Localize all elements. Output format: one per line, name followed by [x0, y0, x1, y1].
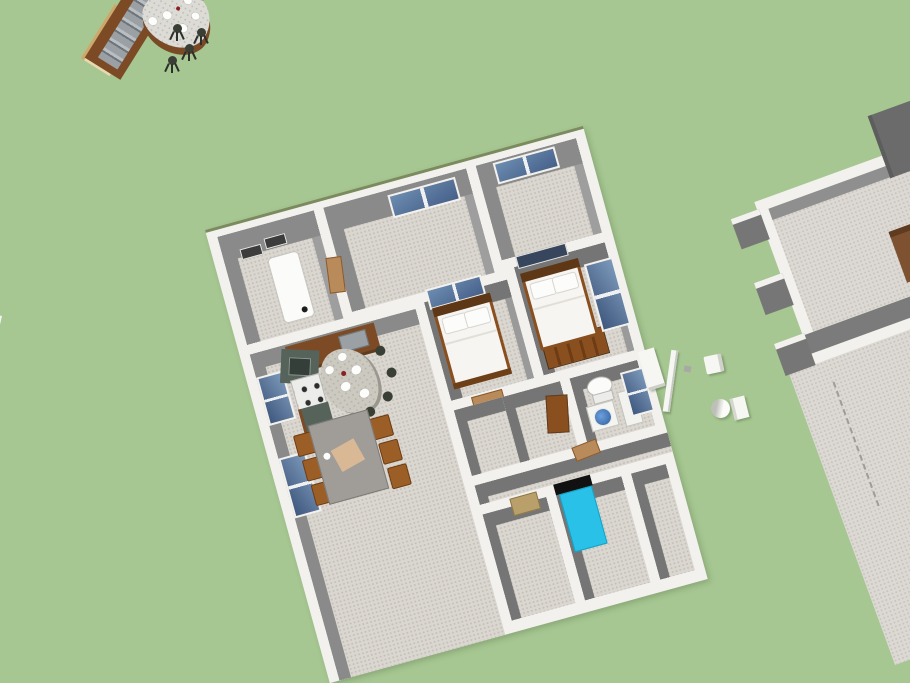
red-item	[175, 6, 180, 11]
small-gray-mark	[684, 366, 692, 373]
corner-sink-basin	[288, 357, 311, 376]
dining-chair[interactable]	[387, 463, 412, 490]
white-cylinder[interactable]	[711, 399, 730, 418]
window	[387, 177, 461, 219]
refrigerator[interactable]	[267, 250, 316, 324]
kitchen-bar-model[interactable]	[85, 0, 235, 100]
room-utility	[217, 210, 343, 345]
stool[interactable]	[197, 28, 206, 37]
wall-vent	[239, 244, 263, 260]
stool[interactable]	[173, 24, 182, 33]
white-box[interactable]	[703, 353, 724, 374]
cyan-bed[interactable]	[559, 485, 608, 552]
unfinished-structure-model[interactable]	[770, 219, 783, 232]
sink-cabinet[interactable]	[586, 400, 620, 433]
window	[493, 146, 561, 184]
black-chair[interactable]	[385, 366, 397, 378]
placemat	[331, 438, 365, 472]
plate	[161, 10, 173, 21]
room-front-right	[476, 138, 602, 260]
stool[interactable]	[185, 44, 194, 53]
black-chair[interactable]	[374, 345, 386, 357]
red-item	[340, 370, 347, 377]
wall-vent	[263, 233, 287, 249]
blue-basin	[592, 406, 614, 428]
plate	[190, 11, 200, 21]
stool[interactable]	[168, 56, 177, 65]
open-wood-door[interactable]	[545, 394, 569, 433]
black-chair[interactable]	[382, 390, 394, 402]
plate	[183, 0, 193, 6]
plate	[147, 15, 159, 26]
viewport-3d-scene[interactable]: { "viewport": { "type": "3d-home-design-…	[0, 0, 910, 512]
